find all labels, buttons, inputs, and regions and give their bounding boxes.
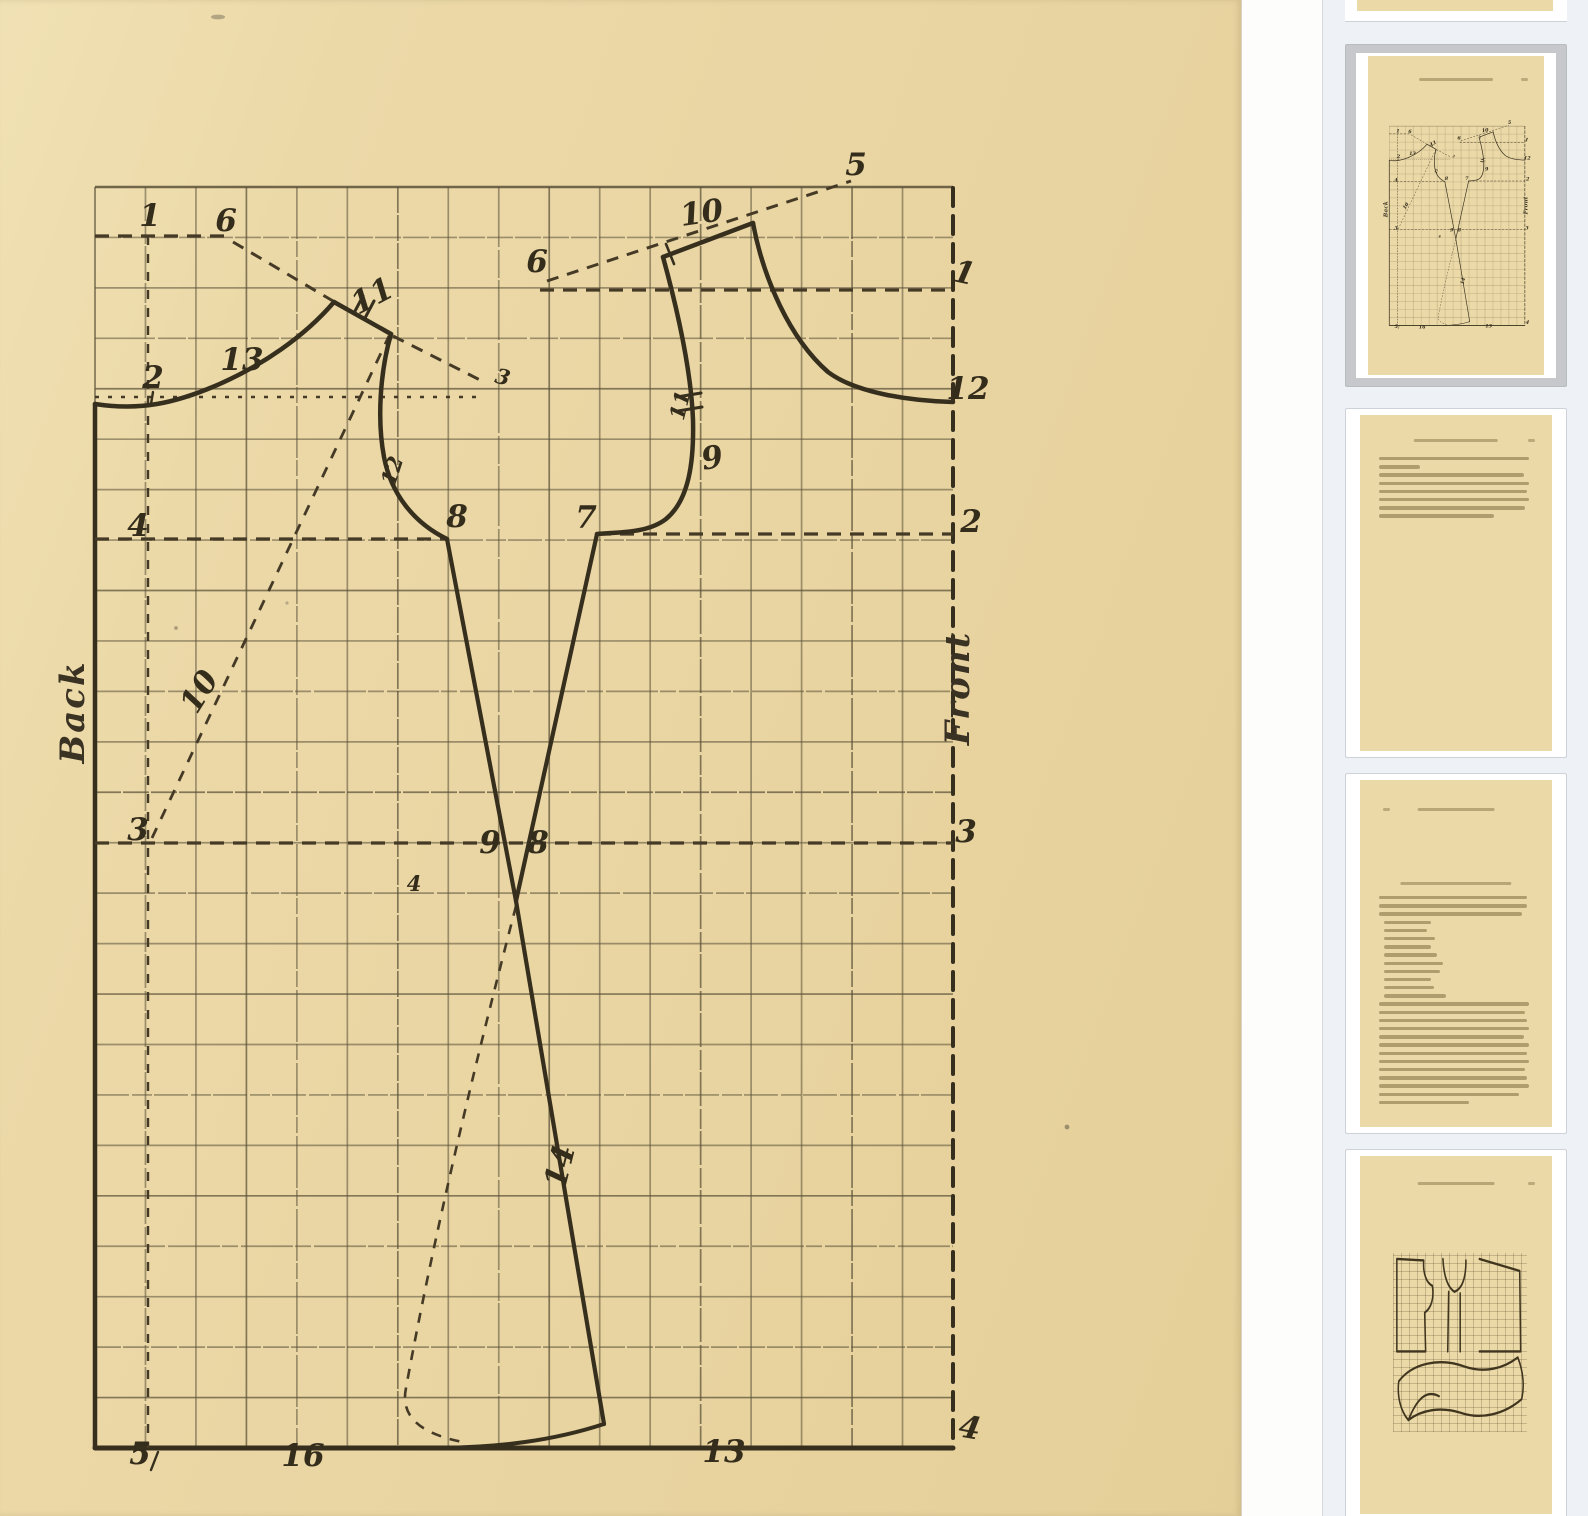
thumbnail-page-edge	[1357, 0, 1553, 11]
thumbnail-text-line	[1384, 994, 1446, 997]
thumbnail-page-number	[1528, 1182, 1535, 1185]
thumbnail-text-line	[1379, 1052, 1527, 1055]
thumbnail-text-lines	[1379, 896, 1535, 1109]
pattern-outline	[95, 223, 953, 1470]
thumbnail-text-line	[1379, 896, 1527, 899]
thumbnail-text-line	[1384, 929, 1428, 932]
thumbnail-text-line	[1379, 1084, 1528, 1087]
thumbnail-text-line	[1379, 1101, 1469, 1104]
diagram-point-label: 4	[407, 871, 422, 896]
diagram-point-label: 9	[699, 439, 727, 478]
thumbnail-text-line	[1384, 945, 1431, 948]
diagram-point-label: 3	[955, 814, 977, 850]
diagram-point-label: 1	[139, 198, 161, 234]
thumbnail-sidebar	[1322, 0, 1588, 1516]
diagram-point-label: 2	[959, 504, 982, 540]
thumbnail-header-text	[1418, 808, 1495, 811]
diagram-point-label: 6	[215, 203, 237, 239]
diagram-point-label: 13	[702, 1434, 745, 1470]
page-gutter	[1242, 0, 1322, 1516]
diagram-point-label: 6	[526, 244, 548, 280]
mini-pattern-pieces-diagram	[1393, 1253, 1527, 1432]
thumbnail-page-number	[1383, 808, 1390, 811]
hem-curve	[440, 1424, 604, 1448]
thumbnail-text-line	[1384, 953, 1437, 956]
scan-speck	[174, 626, 178, 630]
thumbnail-page-number	[1528, 439, 1535, 442]
scan-speck	[211, 15, 225, 20]
thumbnail-text-line	[1384, 978, 1431, 981]
diagram-point-label: 5	[845, 147, 867, 183]
thumbnail-text-line	[1379, 473, 1524, 476]
diagram-point-label: 9	[479, 825, 501, 861]
diagram-point-label: 3	[493, 363, 513, 391]
diagram-point-label: 14	[538, 1141, 583, 1192]
thumbnail-text-line	[1379, 1043, 1528, 1046]
scan-speck	[1065, 1125, 1070, 1130]
diagram-point-label: 2	[141, 360, 164, 396]
thumbnail-text-line	[1379, 1093, 1519, 1096]
thumbnail-text-line	[1379, 1068, 1525, 1071]
diagram-point-label: 10	[173, 664, 227, 720]
thumbnail-page-image	[1360, 780, 1552, 1127]
thumbnail-text-line	[1379, 1002, 1528, 1005]
thumbnail-text-lines	[1379, 457, 1535, 523]
thumbnail-text-line	[1379, 1060, 1528, 1063]
thumbnail-sheet	[1356, 53, 1556, 378]
thumbnail-text-line	[1379, 514, 1494, 517]
diagram-point-label: 8	[526, 825, 549, 861]
thumbnail-page-number	[1521, 78, 1528, 81]
front-neck-curve	[753, 223, 953, 402]
thumbnail-text-line	[1384, 970, 1440, 973]
thumbnail-text-line	[1379, 1019, 1527, 1022]
diagram-point-label: 12	[375, 453, 408, 489]
page-thumbnail-pattern-pieces[interactable]	[1345, 1149, 1567, 1516]
thumbnail-text-line	[1379, 498, 1528, 501]
thumbnail-text-line	[1384, 937, 1435, 940]
thumbnail-header-text	[1418, 1182, 1495, 1185]
thumbnail-text-line	[1379, 465, 1419, 468]
point-labels: 165106112132113124872911103398144516134	[127, 147, 989, 1474]
bottom-left-tick	[151, 1452, 158, 1470]
thumbnail-text-line	[1379, 457, 1528, 460]
thumbnail-page-image	[1360, 1156, 1552, 1514]
thumbnail-section-heading	[1400, 882, 1511, 885]
book-reader-window: 165106112132113124872911103398144516134 …	[0, 0, 1588, 1516]
front-side-label: Front	[938, 631, 978, 747]
thumbnail-text-line	[1379, 506, 1525, 509]
main-scanned-page[interactable]: 165106112132113124872911103398144516134 …	[0, 0, 1242, 1516]
thumbnail-text-line	[1379, 1076, 1527, 1079]
diagram-point-label: 13	[220, 342, 263, 378]
diagram-point-label: 8	[445, 499, 468, 535]
scan-speck	[285, 601, 288, 604]
page-thumbnail-text[interactable]	[1345, 408, 1567, 758]
back-armhole-curve	[380, 334, 447, 539]
page-thumbnail-current-diagram[interactable]	[1345, 44, 1567, 387]
diagram-point-label: 7	[575, 500, 597, 536]
thumbnail-page-image	[1360, 415, 1552, 751]
thumbnail-text-line	[1379, 1035, 1524, 1038]
diagram-point-label: 4	[956, 1409, 984, 1448]
thumbnail-text-line	[1384, 986, 1434, 989]
thumbnail-text-line	[1379, 490, 1527, 493]
thumbnail-text-line	[1384, 962, 1443, 965]
thumbnail-text-line	[1379, 482, 1528, 485]
gown-draft-diagram-svg: 165106112132113124872911103398144516134 …	[0, 0, 1242, 1516]
thumbnail-text-line	[1379, 1011, 1525, 1014]
diagram-point-label: 12	[946, 371, 989, 407]
diagram-point-label: 4	[127, 508, 149, 544]
back-side-label: Back	[53, 660, 93, 764]
thumbnail-text-line	[1384, 921, 1431, 924]
thumbnail-text-line	[1379, 904, 1527, 907]
diagram-point-label: 10	[678, 192, 726, 234]
thumbnail-header-text	[1419, 78, 1493, 81]
thumbnail-text-line	[1379, 1027, 1528, 1030]
thumbnail-header-text	[1414, 439, 1498, 442]
mini-gown-diagram	[1379, 97, 1534, 352]
diagram-point-label: 3	[127, 812, 149, 848]
gown-draft-diagram: 165106112132113124872911103398144516134 …	[53, 147, 990, 1474]
thumbnail-page-image	[1368, 56, 1544, 375]
back-neck-curve	[95, 302, 334, 407]
thumbnail-text-line	[1379, 912, 1522, 915]
page-thumbnail-partial[interactable]	[1345, 0, 1567, 22]
page-thumbnail-measurements[interactable]	[1345, 773, 1567, 1134]
diagram-point-label: 16	[281, 1438, 324, 1474]
diagram-point-label: 5	[129, 1436, 151, 1472]
